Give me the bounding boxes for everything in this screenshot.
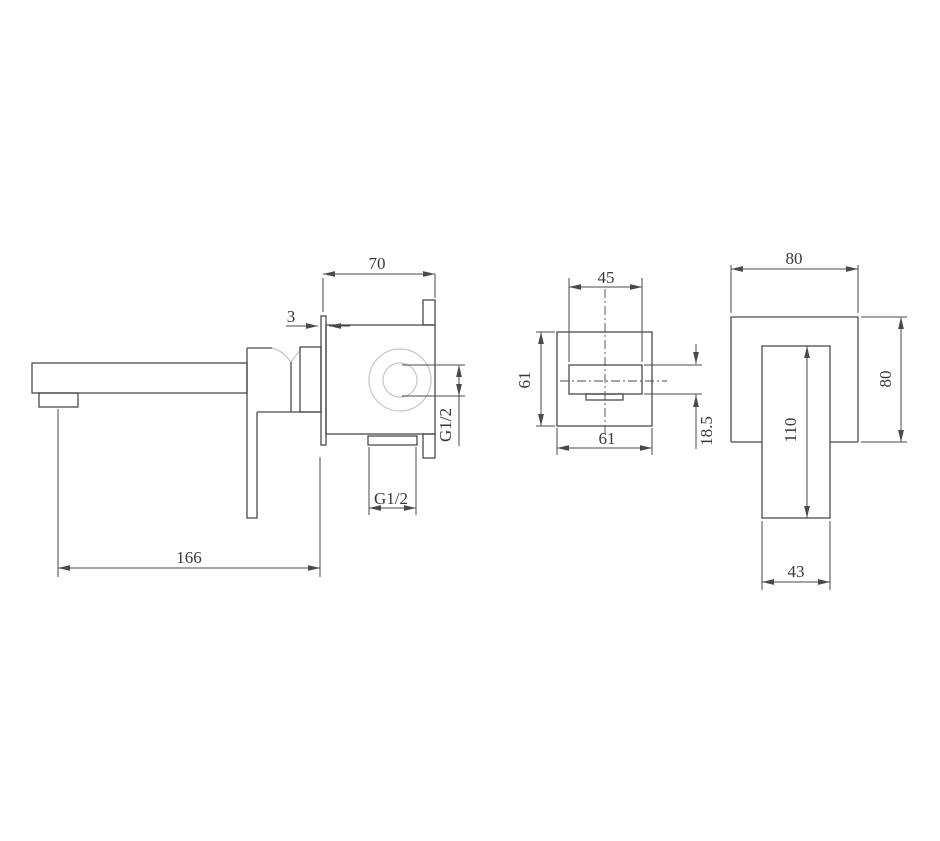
aerator-outline (39, 393, 78, 407)
dim-label-outlet-g12: G1/2 (374, 489, 408, 508)
dim-label-61-width: 61 (599, 429, 616, 448)
dim-70-extension-lines (323, 274, 435, 312)
dim-label-61-height: 61 (515, 372, 534, 389)
dim-label-3: 3 (287, 307, 296, 326)
aerator-front-outline (586, 394, 623, 400)
spout-front-outline (569, 365, 642, 394)
mounting-tab-top (423, 300, 435, 325)
handle-neck-outline (300, 347, 321, 412)
spout-plate-view: 45 61 18.5 61 (515, 268, 716, 455)
handle-cap-curve-left (272, 348, 291, 362)
cartridge-circle-inner (383, 363, 417, 397)
dim-label-inlet-g12: G1/2 (436, 408, 455, 442)
valve-body-outline (326, 325, 435, 434)
dim-61-height-extension-lines (536, 332, 555, 426)
spout-plate-outline (557, 332, 652, 426)
side-view: 70 3 G1/2 G1/2 166 (32, 254, 465, 577)
technical-drawing: 70 3 G1/2 G1/2 166 45 61 (0, 0, 940, 841)
dim-label-110: 110 (781, 418, 800, 443)
handle-lever-outline (247, 348, 257, 518)
dim-80-width-extension-lines (731, 265, 858, 313)
mounting-tab-bottom (423, 434, 435, 458)
dim-45-extension-lines (569, 278, 642, 362)
wall-plate-outline (321, 316, 326, 445)
handle-plate-view: 80 80 110 43 (731, 249, 907, 590)
cartridge-circle-outer (369, 349, 431, 411)
dim-18-5-extension-lines (644, 365, 702, 394)
dim-label-80-width: 80 (786, 249, 803, 268)
inlet-port-lines (402, 365, 465, 396)
dim-label-166: 166 (176, 548, 202, 567)
dim-label-80-height: 80 (876, 371, 895, 388)
dim-label-18-5: 18.5 (697, 416, 716, 446)
dim-label-70: 70 (369, 254, 386, 273)
drawing-svg: 70 3 G1/2 G1/2 166 45 61 (0, 0, 940, 841)
outlet-stub-outline (368, 436, 417, 445)
spout-outline (32, 363, 247, 393)
dim-label-45: 45 (598, 268, 615, 287)
dim-label-43: 43 (788, 562, 805, 581)
